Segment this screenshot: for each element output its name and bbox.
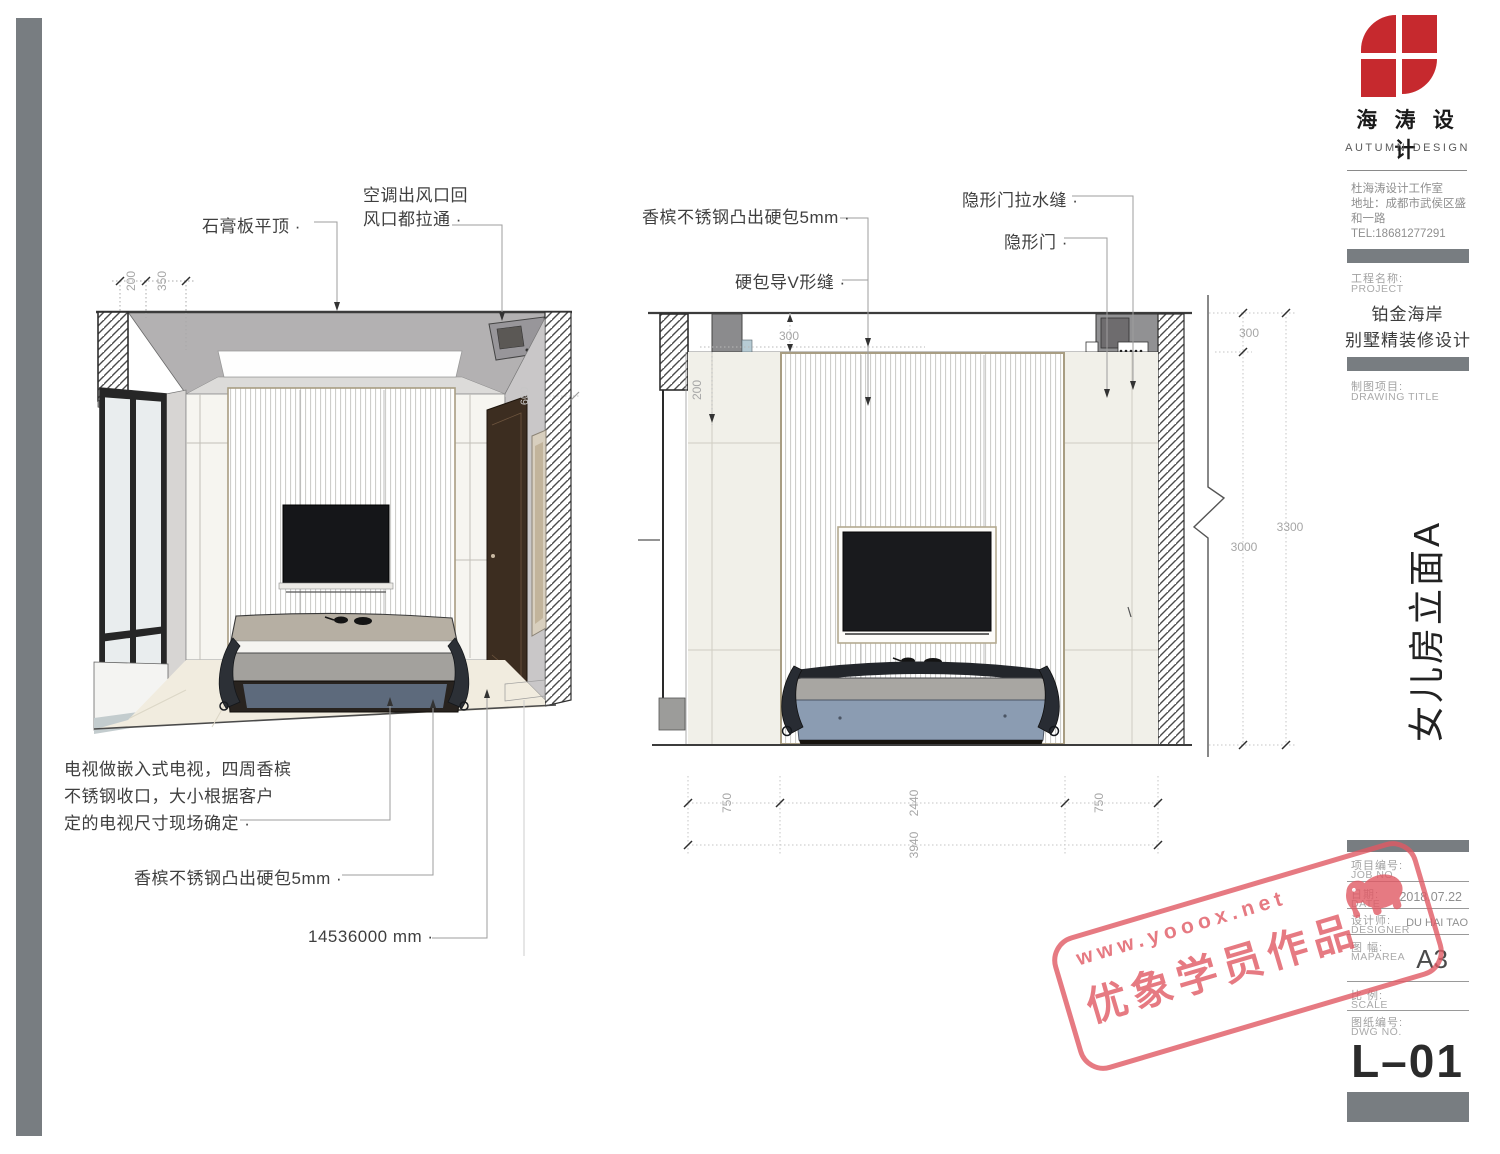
note-recessed-tv: 电视做嵌入式电视，四周香槟 不锈钢收口，大小根据客户 定的电视尺寸现场确定 · (64, 756, 292, 837)
elevation-title-vertical: 女儿房立面A (1398, 520, 1450, 742)
annotation-hardpack-right: 香槟不锈钢凸出硬包5mm · (642, 203, 850, 228)
studio-name: 杜海涛设计工作室 (1351, 182, 1470, 197)
drawing-title-label-en: DRAWING TITLE (1351, 391, 1439, 403)
svg-text:350: 350 (155, 271, 169, 291)
brand-name-en: AUTUMN DESIGN (1345, 142, 1470, 154)
svg-text:3000: 3000 (1231, 540, 1258, 554)
svg-text:2440: 2440 (907, 789, 921, 816)
company-logo (1361, 14, 1437, 98)
studio-tel: TEL:18681277291 (1351, 227, 1470, 242)
svg-text:750: 750 (1092, 793, 1106, 813)
brand-name-cn: 海 涛 设 计 (1345, 104, 1470, 164)
drawing-sheet: 200 350 600 (0, 0, 1500, 1154)
note-recessed-tv-line3: 定的电视尺寸现场确定 · (64, 810, 292, 837)
annotation-v-seam: 硬包导V形缝 · (735, 268, 846, 293)
annotation-size-left: 14536000 mm · (308, 927, 434, 947)
annotation-ac-vent-line1: 空调出风口回 (363, 184, 468, 208)
svg-text:750: 750 (720, 793, 734, 813)
section-band (1347, 249, 1469, 263)
svg-text:600: 600 (519, 387, 531, 405)
svg-text:3940: 3940 (907, 831, 921, 858)
svg-text:3300: 3300 (1277, 520, 1304, 534)
right-elevation-drawing (638, 313, 1192, 746)
annotation-ac-vent-line2: 风口都拉通 · (363, 208, 468, 232)
annotation-hardpack-left: 香槟不锈钢凸出硬包5mm · (134, 864, 342, 889)
studio-address: 地址：成都市武侯区盛和一路 (1351, 197, 1470, 227)
svg-text:300: 300 (779, 329, 799, 343)
project-label-en: PROJECT (1351, 283, 1404, 295)
studio-info: 杜海涛设计工作室 地址：成都市武侯区盛和一路 TEL:18681277291 (1351, 182, 1470, 242)
row-divider (1347, 1010, 1469, 1011)
project-name-line1: 铂金海岸 (1345, 300, 1470, 325)
annotation-hidden-door: 隐形门 · (1004, 228, 1068, 253)
svg-text:300: 300 (1239, 326, 1259, 340)
divider (1347, 170, 1467, 171)
annotation-ac-vent: 空调出风口回 风口都拉通 · (363, 184, 468, 232)
svg-text:200: 200 (690, 380, 704, 400)
sheet-number: L–01 (1345, 1034, 1470, 1088)
svg-text:200: 200 (124, 271, 138, 291)
left-elevation-drawing (94, 312, 572, 734)
section-band (1347, 1092, 1469, 1122)
annotation-hidden-door-seam: 隐形门拉水缝 · (962, 186, 1078, 211)
note-recessed-tv-line2: 不锈钢收口，大小根据客户 (64, 783, 292, 810)
note-recessed-tv-line1: 电视做嵌入式电视，四周香槟 (64, 756, 292, 783)
annotation-gypsum-ceiling: 石膏板平顶 · (202, 212, 301, 237)
project-name-line2: 别墅精装修设计 (1345, 326, 1470, 351)
section-band (1347, 357, 1469, 371)
